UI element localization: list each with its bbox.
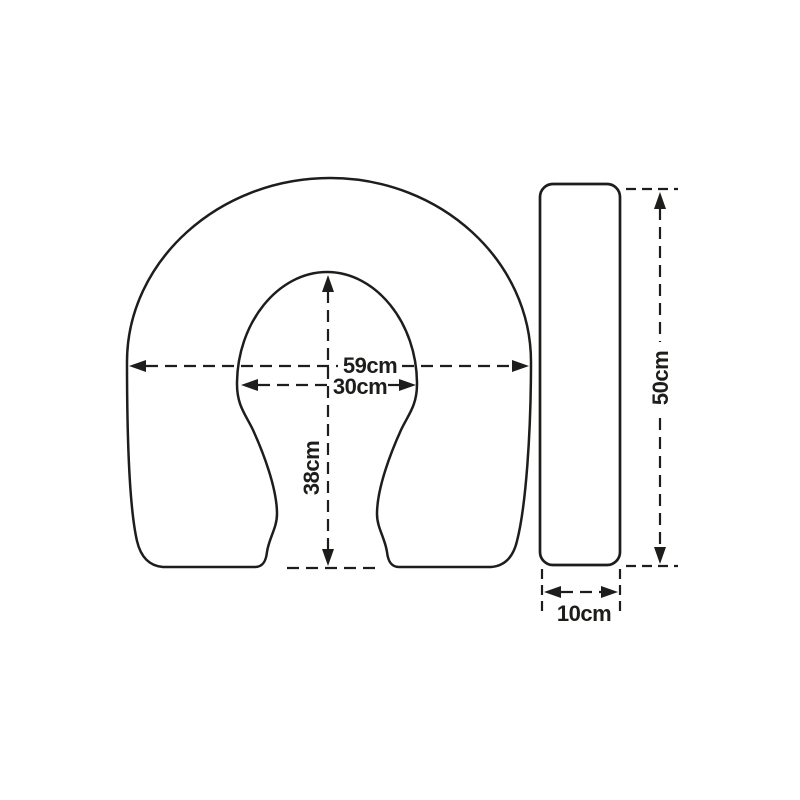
dimension-inner-depth: 38cm [287, 275, 381, 568]
side-length-label: 50cm [648, 351, 673, 405]
front-view: 59cm 30cm 38cm [127, 178, 531, 568]
arrowhead-down-icon [654, 547, 666, 564]
arrowhead-up-icon [322, 275, 334, 292]
dimension-side-length: 50cm [626, 189, 678, 566]
side-thickness-label: 10cm [557, 601, 611, 626]
cushion-dimension-diagram: 59cm 30cm 38cm [0, 0, 800, 800]
arrowhead-left-icon [544, 586, 561, 598]
arrowhead-up-icon [654, 192, 666, 209]
inner-width-label: 30cm [333, 374, 387, 399]
cushion-side-outline [540, 184, 620, 565]
arrowhead-right-icon [601, 586, 618, 598]
diagram-page: 59cm 30cm 38cm [0, 0, 800, 800]
dimension-side-thickness: 10cm [542, 569, 620, 626]
inner-depth-label: 38cm [299, 441, 324, 495]
side-view: 50cm 10cm [540, 184, 678, 626]
arrowhead-right-icon [399, 379, 416, 391]
arrowhead-down-icon [322, 549, 334, 566]
arrowhead-left-icon [241, 379, 258, 391]
